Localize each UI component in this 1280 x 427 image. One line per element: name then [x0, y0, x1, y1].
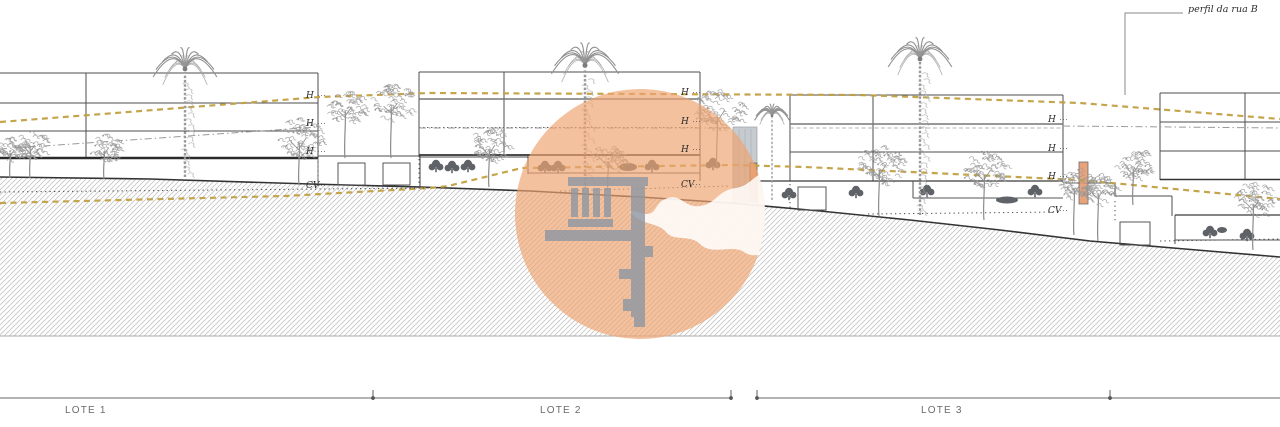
site-section-drawing: HHHCVHHHCVHHHCV LOTE 1 LOTE 2 LOTE 3 per…: [0, 0, 1280, 422]
dimension-lines: [0, 390, 1280, 400]
level-marker-h: H: [680, 145, 689, 155]
level-marker-h: H: [1047, 144, 1056, 154]
level-marker-cv: CV: [681, 180, 696, 190]
level-marker-h: H: [1047, 172, 1056, 182]
architectural-section-viewport: HHHCVHHHCVHHHCV LOTE 1 LOTE 2 LOTE 3 per…: [0, 0, 1280, 427]
level-marker-cv: CV: [306, 181, 321, 191]
lot-label-3: LOTE 3: [921, 405, 963, 416]
level-marker-h: H: [305, 91, 314, 101]
lot-labels: LOTE 1 LOTE 2 LOTE 3: [65, 405, 963, 416]
level-marker-h: H: [680, 88, 689, 98]
lot-label-1: LOTE 1: [65, 405, 107, 416]
lot-label-2: LOTE 2: [540, 405, 582, 416]
level-marker-h: H: [305, 147, 314, 157]
street-profile-label: perfil da rua B: [1188, 4, 1258, 15]
level-marker-h: H: [1047, 115, 1056, 125]
callout-leader-line: [1125, 13, 1183, 95]
street-profile-callout: perfil da rua B: [1125, 4, 1258, 95]
level-marker-h: H: [305, 119, 314, 129]
level-marker-cv: CV: [1048, 206, 1063, 216]
level-marker-h: H: [680, 117, 689, 127]
